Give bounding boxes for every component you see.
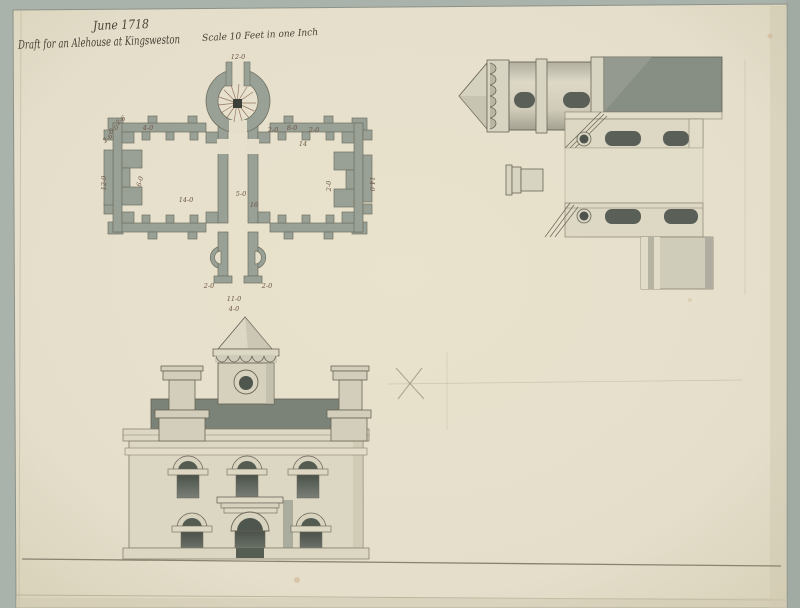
dimension-label: 12-0 (231, 53, 246, 61)
dimension-label: 11-0 (227, 295, 242, 303)
turret-corridor-opening (229, 120, 247, 134)
dimension-label: 2-0 (308, 126, 319, 134)
chimney (506, 165, 543, 195)
wall-edge-shade (353, 441, 363, 548)
round-window (580, 135, 589, 144)
dimension-label: 8-0 (287, 124, 297, 132)
slot-window (605, 209, 641, 224)
round-window (580, 212, 589, 221)
mat-right-edge (786, 0, 800, 608)
string-course (125, 448, 367, 455)
drawing-canvas: June 1718 Draft for an Alehouse at Kings… (0, 0, 800, 608)
slot-window (563, 92, 590, 108)
date-text: June 1718 (90, 16, 149, 33)
dimension-label: 12-0 (100, 176, 108, 191)
plain-wall-band (565, 148, 703, 203)
dimension-label: 14-0 (179, 196, 194, 204)
stair-newel-post (233, 99, 242, 108)
dimension-label: 2-0 (203, 282, 214, 290)
slot-window (663, 131, 689, 146)
oculus-window (239, 376, 253, 390)
slot-window (664, 209, 698, 224)
dimension-label: 2-0 (267, 126, 278, 134)
scanned-drawing: June 1718 Draft for an Alehouse at Kings… (0, 0, 800, 608)
dimension-label: 2-0 (261, 282, 272, 290)
tower-ring (536, 59, 547, 133)
dimension-label: 2-0 (325, 181, 333, 192)
cornice (565, 112, 722, 119)
upper-windows (168, 456, 328, 498)
dimension-label: 5-0 (236, 190, 246, 198)
passage-end-cap (244, 276, 262, 283)
corner-pilaster (689, 119, 703, 148)
right-door-gap (247, 139, 259, 154)
left-door-gap (217, 139, 229, 154)
scalloped-parapet (216, 356, 276, 362)
dimension-label: 16 (250, 201, 258, 209)
lower-wing (641, 237, 713, 289)
dimension-label: 14 (299, 140, 307, 148)
slot-window (605, 131, 641, 146)
dimension-label: 14-0 (368, 177, 376, 192)
dimension-label: 4-0 (228, 305, 239, 313)
door-through-plinth (236, 548, 264, 558)
door-cornice (217, 497, 283, 503)
turret-neck-opening (232, 62, 244, 88)
slot-window (514, 92, 535, 108)
dimension-label: 4-0 (142, 124, 153, 132)
parapet-cap (213, 349, 279, 356)
passage-end-cap (214, 276, 232, 283)
